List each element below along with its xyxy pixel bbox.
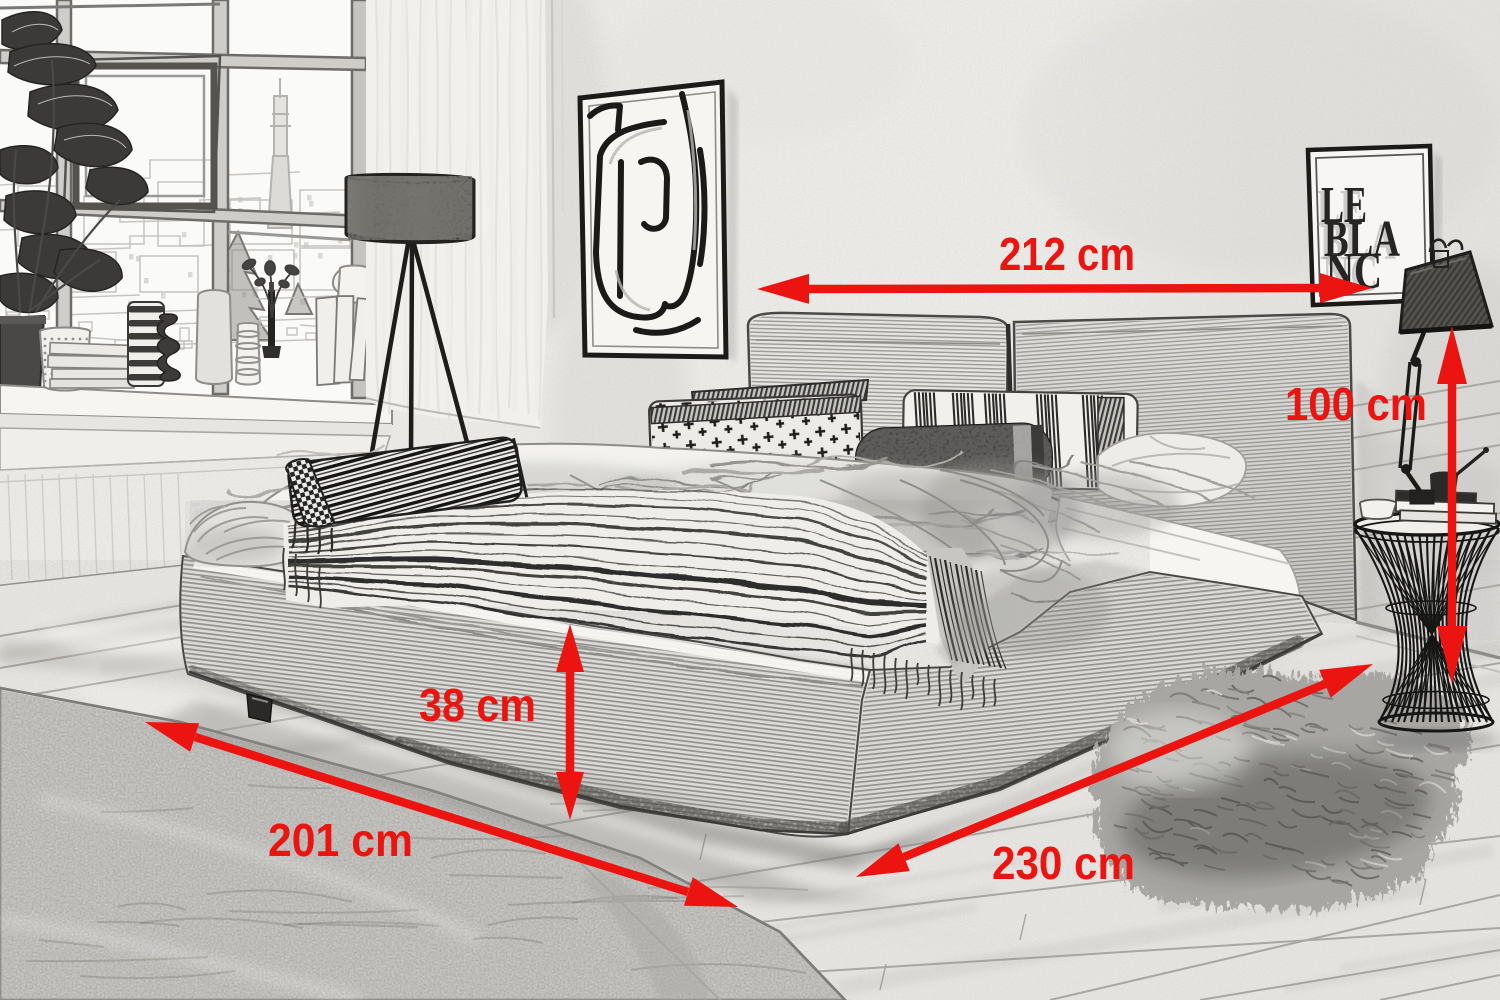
svg-text:100 cm: 100 cm (1285, 378, 1427, 430)
svg-text:212 cm: 212 cm (999, 228, 1135, 280)
svg-text:201 cm: 201 cm (268, 814, 413, 866)
svg-text:230 cm: 230 cm (992, 837, 1135, 889)
svg-text:38 cm: 38 cm (419, 679, 536, 731)
